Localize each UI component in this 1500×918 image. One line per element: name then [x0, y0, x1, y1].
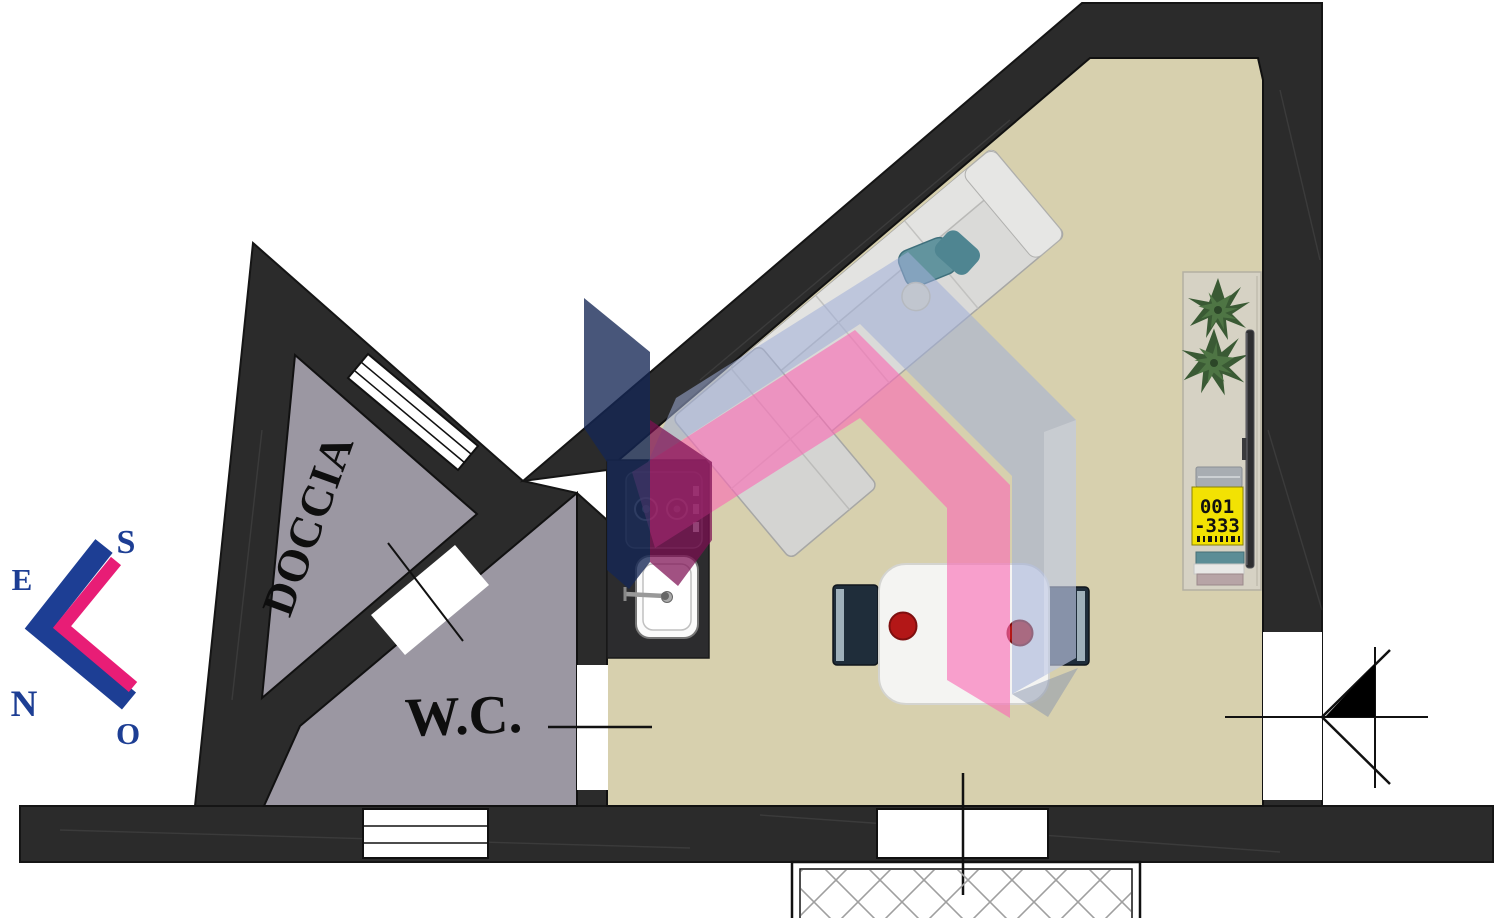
- plate-left: [890, 613, 917, 640]
- compass-east-text: E: [12, 562, 33, 597]
- floor-plan-canvas: 001 -333 E S N O: [0, 0, 1500, 918]
- watermark-gray-highlight: [1044, 420, 1076, 676]
- chair-right-edge: [1077, 591, 1085, 661]
- wc-window: [363, 809, 488, 858]
- chair-left-edge: [836, 589, 844, 661]
- balcony: [792, 862, 1140, 918]
- compass-east-label: E: [12, 562, 33, 597]
- compass-north-text: N: [11, 684, 38, 725]
- sideboard: 001 -333: [1182, 272, 1261, 590]
- balcony-hatch: [801, 870, 1131, 918]
- tag-line-2: -333: [1194, 515, 1240, 537]
- faucet: [625, 594, 665, 596]
- compass-south-text: S: [117, 524, 136, 561]
- magazine-stack: [1194, 552, 1244, 585]
- wc-room-label: W.C.: [404, 683, 523, 748]
- compass-west-label: O: [116, 716, 140, 751]
- compass-west-text: O: [116, 716, 140, 751]
- floor-plan-page: 001 -333 E S N O: [0, 0, 1500, 918]
- compass-north-label: N: [11, 684, 38, 725]
- wall-bottom: [20, 806, 1493, 862]
- yellow-tag-box: 001 -333: [1192, 487, 1243, 545]
- compass-south-label: S: [117, 524, 136, 561]
